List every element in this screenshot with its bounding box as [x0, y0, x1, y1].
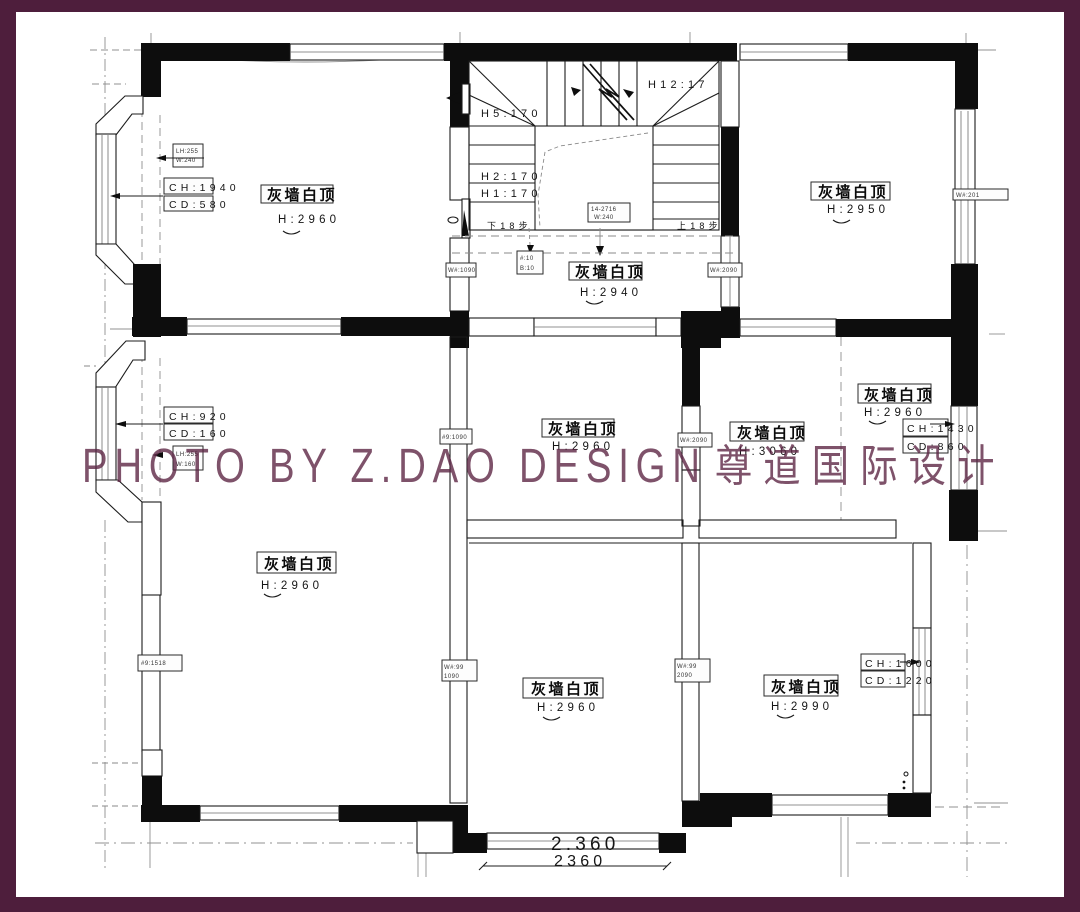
svg-text:2.360: 2.360: [551, 834, 620, 855]
svg-text:CH:920: CH:920: [169, 411, 230, 423]
svg-text:H:2960: H:2960: [261, 580, 323, 592]
svg-text:灰墙白顶: 灰墙白顶: [864, 386, 934, 404]
svg-text:W#:99: W#:99: [677, 664, 697, 670]
svg-text:CH:1940: CH:1940: [169, 182, 240, 194]
svg-text:W#:2090: W#:2090: [710, 268, 738, 274]
svg-text:灰墙白顶: 灰墙白顶: [818, 183, 888, 201]
svg-text:PHOTO BY Z.DAO DESIGN: PHOTO BY Z.DAO DESIGN: [82, 440, 700, 493]
svg-text:H12:17: H12:17: [648, 79, 709, 91]
svg-text:H2:170: H2:170: [481, 171, 542, 183]
svg-text:W:240: W:240: [594, 215, 614, 221]
svg-text:CH:1600: CH:1600: [865, 658, 936, 670]
svg-text:下18步: 下18步: [487, 221, 532, 231]
svg-text:CD:160: CD:160: [169, 428, 230, 440]
svg-text:W:240: W:240: [176, 158, 196, 164]
svg-text:W#:1090: W#:1090: [448, 268, 476, 274]
svg-text:2360: 2360: [554, 853, 606, 870]
svg-text:B:10: B:10: [520, 266, 535, 272]
svg-text:灰墙白顶: 灰墙白顶: [267, 186, 337, 204]
svg-text:W#:201: W#:201: [956, 193, 980, 199]
svg-text:H:2960: H:2960: [278, 214, 340, 226]
svg-text:上18步: 上18步: [677, 221, 722, 231]
svg-text:14-2716: 14-2716: [591, 207, 617, 213]
svg-text:H:2990: H:2990: [771, 701, 833, 713]
svg-text:灰墙白顶: 灰墙白顶: [575, 263, 645, 281]
svg-text:2090: 2090: [677, 673, 693, 679]
svg-text:灰墙白顶: 灰墙白顶: [531, 680, 601, 698]
svg-text:#:10: #:10: [520, 256, 534, 262]
svg-text:H5:170: H5:170: [481, 108, 542, 120]
svg-text:H:2960: H:2960: [537, 702, 599, 714]
svg-text:#9:1518: #9:1518: [141, 661, 166, 667]
svg-text:LH:255: LH:255: [176, 149, 199, 155]
svg-text:CD:1220: CD:1220: [865, 675, 936, 687]
svg-text:H:2960: H:2960: [864, 407, 926, 419]
svg-text:灰墙白顶: 灰墙白顶: [548, 420, 618, 438]
svg-text:灰墙白顶: 灰墙白顶: [737, 424, 807, 442]
svg-text:灰墙白顶: 灰墙白顶: [264, 555, 334, 573]
svg-text:1090: 1090: [444, 674, 460, 680]
svg-text:灰墙白顶: 灰墙白顶: [771, 678, 841, 696]
svg-text:H:2950: H:2950: [827, 204, 889, 216]
svg-text:CH:1430: CH:1430: [907, 423, 978, 435]
svg-text:H:2940: H:2940: [580, 287, 642, 299]
svg-text:W#:99: W#:99: [444, 665, 464, 671]
svg-text:H1:170: H1:170: [481, 188, 542, 200]
svg-text:CD:580: CD:580: [169, 199, 230, 211]
